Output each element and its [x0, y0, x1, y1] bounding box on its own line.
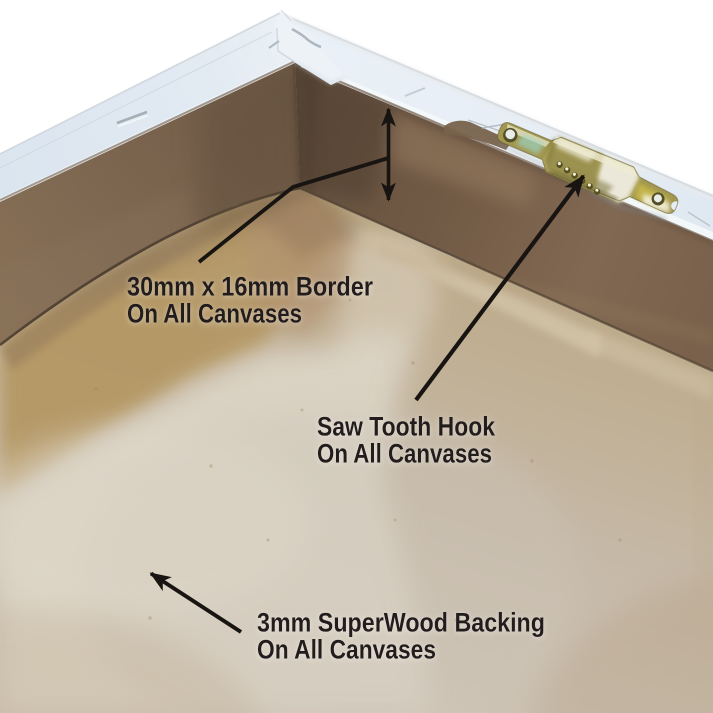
svg-text:3mm SuperWood Backing: 3mm SuperWood Backing	[257, 608, 545, 638]
svg-text:30mm x 16mm Border: 30mm x 16mm Border	[127, 272, 373, 302]
svg-text:On All Canvases: On All Canvases	[127, 298, 302, 328]
svg-text:On All Canvases: On All Canvases	[257, 635, 436, 665]
svg-text:On All Canvases: On All Canvases	[317, 438, 492, 468]
svg-text:Saw Tooth Hook: Saw Tooth Hook	[317, 412, 495, 442]
